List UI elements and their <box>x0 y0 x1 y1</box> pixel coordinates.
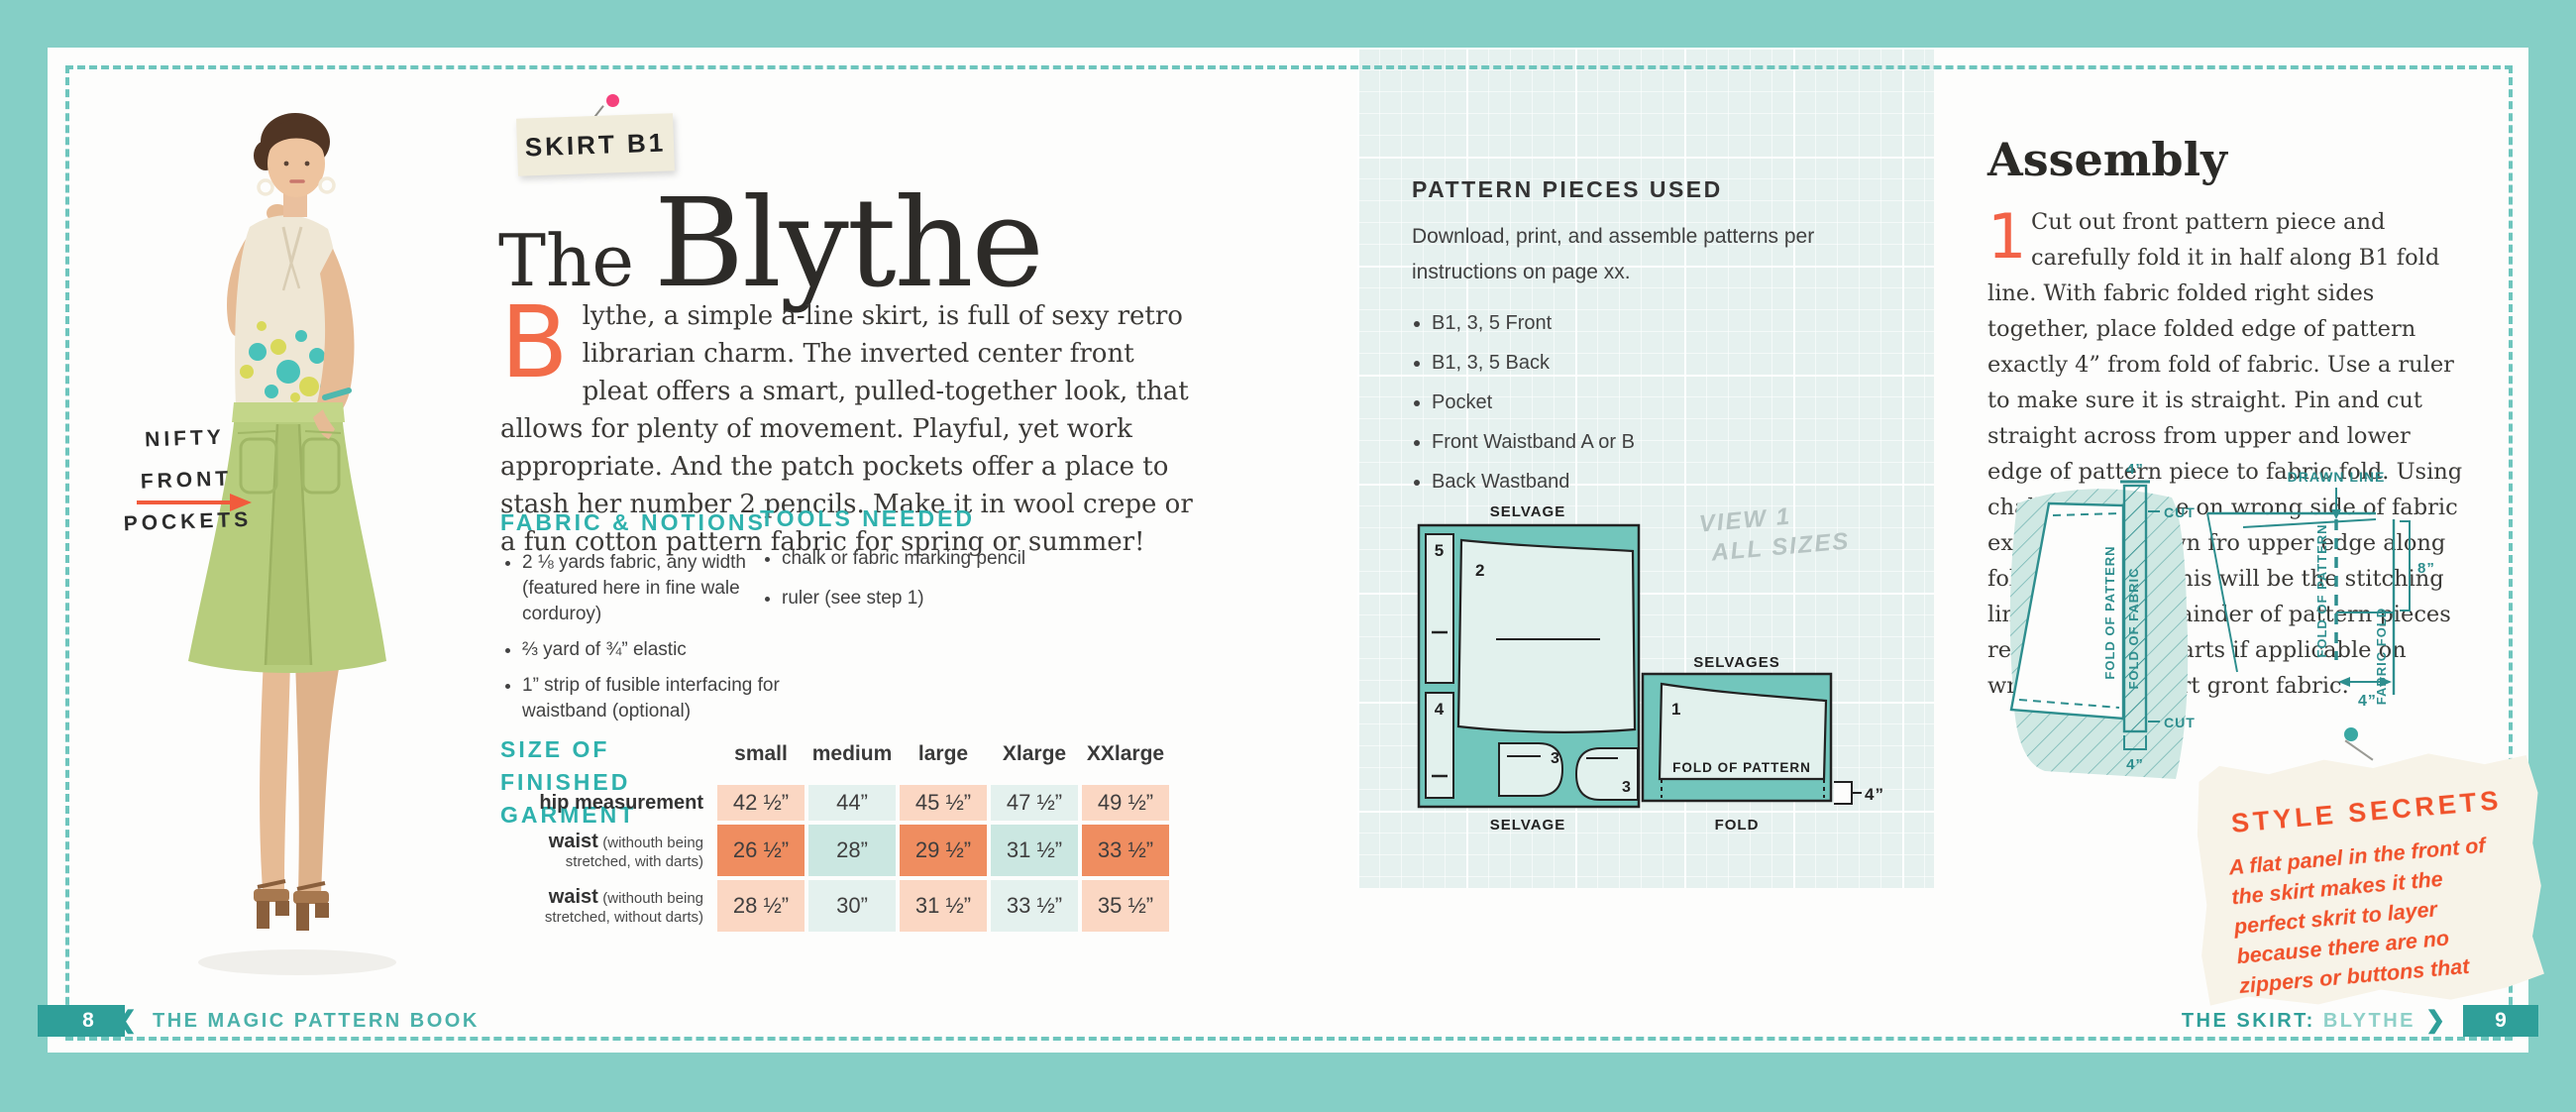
list-item: 1” strip of fusible interfacing for wais… <box>522 673 798 724</box>
table-cell: 31 ½” <box>991 825 1078 876</box>
fold-of-pattern-label: FOLD OF PATTERN <box>1672 760 1811 775</box>
selvage-bottom-label: SELVAGE <box>1490 817 1565 834</box>
list-item: 2 ⅛ yards fabric, any width (featured he… <box>522 550 798 627</box>
tag-label: SKIRT B1 <box>524 127 666 163</box>
table-cell: 29 ½” <box>900 825 987 876</box>
assembly-heading: Assembly <box>1987 133 2469 186</box>
page-spread: NIFTY FRONT POCKETS SKIRT B1 The Blythe … <box>48 48 2528 1053</box>
selvage-top-label: SELVAGE <box>1490 503 1565 520</box>
svg-text:2: 2 <box>1475 561 1485 580</box>
tools-heading: TOOLS NEEDED <box>760 505 1097 532</box>
title-blythe: Blythe <box>654 172 1042 315</box>
svg-text:4: 4 <box>1435 700 1445 719</box>
book-spread: NIFTY FRONT POCKETS SKIRT B1 The Blythe … <box>0 0 2576 1112</box>
svg-text:FOLD OF FABRIC: FOLD OF FABRIC <box>2126 567 2141 689</box>
column-header: small <box>717 739 805 769</box>
svg-text:4”: 4” <box>2358 693 2377 710</box>
running-title-left: THE MAGIC PATTERN BOOK <box>153 1005 480 1037</box>
table-row-waist-darts: waist (withouth being stretched, with da… <box>500 825 1174 876</box>
table-cell: 35 ½” <box>1082 880 1169 932</box>
photo-annotation: NIFTY FRONT POCKETS <box>97 415 275 546</box>
svg-text:1: 1 <box>1671 700 1681 719</box>
earring-icon <box>259 180 272 194</box>
svg-text:4”: 4” <box>2126 462 2144 478</box>
style-secrets-heading: STYLE SECRETS <box>2230 785 2504 839</box>
list-item: B1, 3, 5 Back <box>1432 352 1897 375</box>
pattern-pieces-heading: PATTERN PIECES USED <box>1412 176 1897 203</box>
tools-list: chalk or fabric marking pencil ruler (se… <box>760 546 1097 612</box>
fabric-notions-list: 2 ⅛ yards fabric, any width (featured he… <box>500 550 798 724</box>
table-cell: 42 ½” <box>717 785 805 821</box>
chevron-right-icon: ❯ <box>2425 1005 2445 1037</box>
svg-text:5: 5 <box>1435 541 1445 560</box>
list-item: chalk or fabric marking pencil <box>782 546 1097 572</box>
fold-diagram: 4” CUT CUT FOLD OF PATTERN FOLD OF FABRI… <box>1987 462 2463 799</box>
svg-text:FOLD OF PATTERN: FOLD OF PATTERN <box>2314 523 2329 657</box>
teal-pin-icon <box>2344 727 2358 741</box>
svg-text:FABRIC FOLD: FABRIC FOLD <box>2374 608 2389 705</box>
pink-pin-icon <box>606 94 619 107</box>
running-title-right: THE SKIRT:BLYTHE <box>2029 1005 2415 1037</box>
style-secrets-text: A flat panel in the front of the skirt m… <box>2227 829 2525 1031</box>
table-cell: 49 ½” <box>1082 785 1169 821</box>
row-label: waist <box>549 886 598 908</box>
list-item: Front Waistband A or B <box>1432 431 1897 454</box>
list-item: ruler (see step 1) <box>782 586 1097 612</box>
table-cell: 45 ½” <box>900 785 987 821</box>
chevron-left-icon: ❮ <box>117 1005 137 1037</box>
fold-label: FOLD <box>1715 817 1760 834</box>
svg-text:4”: 4” <box>2126 756 2144 773</box>
svg-text:DRAWN LINE: DRAWN LINE <box>2288 469 2386 485</box>
list-item: Pocket <box>1432 391 1897 414</box>
earring-icon <box>320 178 334 192</box>
page-title: The Blythe <box>498 172 1042 315</box>
step-number: 1 <box>1987 204 2031 270</box>
floor-shadow <box>198 949 396 975</box>
svg-text:3: 3 <box>1622 779 1632 796</box>
svg-text:FOLD OF PATTERN: FOLD OF PATTERN <box>2102 545 2117 679</box>
page-number: 8 <box>82 1009 94 1033</box>
measure-label: 4” <box>1865 785 1884 804</box>
dropcap: B <box>500 303 569 383</box>
annotation-line: NIFTY <box>97 415 272 463</box>
size-table-header-row: small medium large Xlarge XXlarge <box>500 739 1174 769</box>
pattern-pieces-list: B1, 3, 5 Front B1, 3, 5 Back Pocket Fron… <box>1412 312 1897 494</box>
table-cell: 33 ½” <box>1082 825 1169 876</box>
table-cell: 28 ½” <box>717 880 805 932</box>
row-label: waist <box>549 831 598 852</box>
fabric-notions-heading: FABRIC & NOTIONS <box>500 509 798 536</box>
column-header: medium <box>808 739 896 769</box>
page-number-ribbon-right: 9 <box>2463 1005 2538 1037</box>
pattern-pieces-section: PATTERN PIECES USED Download, print, and… <box>1412 176 1897 513</box>
pattern-pieces-intro: Download, print, and assemble patterns p… <box>1412 219 1838 290</box>
column-header: XXlarge <box>1082 739 1169 769</box>
table-cell: 44” <box>808 785 896 821</box>
model-photo <box>139 102 515 994</box>
tools-needed-section: TOOLS NEEDED chalk or fabric marking pen… <box>760 505 1097 625</box>
skirt-tag: SKIRT B1 <box>516 113 675 175</box>
style-secrets-note: STYLE SECRETS A flat panel in the front … <box>2192 747 2549 1011</box>
list-item: B1, 3, 5 Front <box>1432 312 1897 335</box>
table-cell: 47 ½” <box>991 785 1078 821</box>
selvages-label: SELVAGES <box>1693 654 1779 671</box>
page-number-ribbon-left: 8 <box>38 1005 125 1037</box>
arrow-right-icon <box>135 492 254 513</box>
row-label: hip measurement <box>539 792 703 814</box>
table-cell: 31 ½” <box>900 880 987 932</box>
table-cell: 30” <box>808 880 896 932</box>
fabric-notions-section: FABRIC & NOTIONS 2 ⅛ yards fabric, any w… <box>500 509 798 734</box>
table-row-waist-no-darts: waist (withouth being stretched, without… <box>500 880 1174 932</box>
svg-text:CUT: CUT <box>2164 504 2196 520</box>
column-header: Xlarge <box>991 739 1078 769</box>
list-item: ⅔ yard of ¾” elastic <box>522 637 798 663</box>
svg-text:3: 3 <box>1551 750 1560 767</box>
page-number: 9 <box>2495 1009 2507 1033</box>
list-item: Back Wastband <box>1432 471 1897 494</box>
column-header: large <box>900 739 987 769</box>
table-row-hip: hip measurement 42 ½” 44” 45 ½” 47 ½” 49… <box>500 785 1174 821</box>
svg-text:CUT: CUT <box>2164 715 2196 730</box>
table-cell: 26 ½” <box>717 825 805 876</box>
svg-text:8”: 8” <box>2417 560 2435 577</box>
table-cell: 28” <box>808 825 896 876</box>
table-cell: 33 ½” <box>991 880 1078 932</box>
